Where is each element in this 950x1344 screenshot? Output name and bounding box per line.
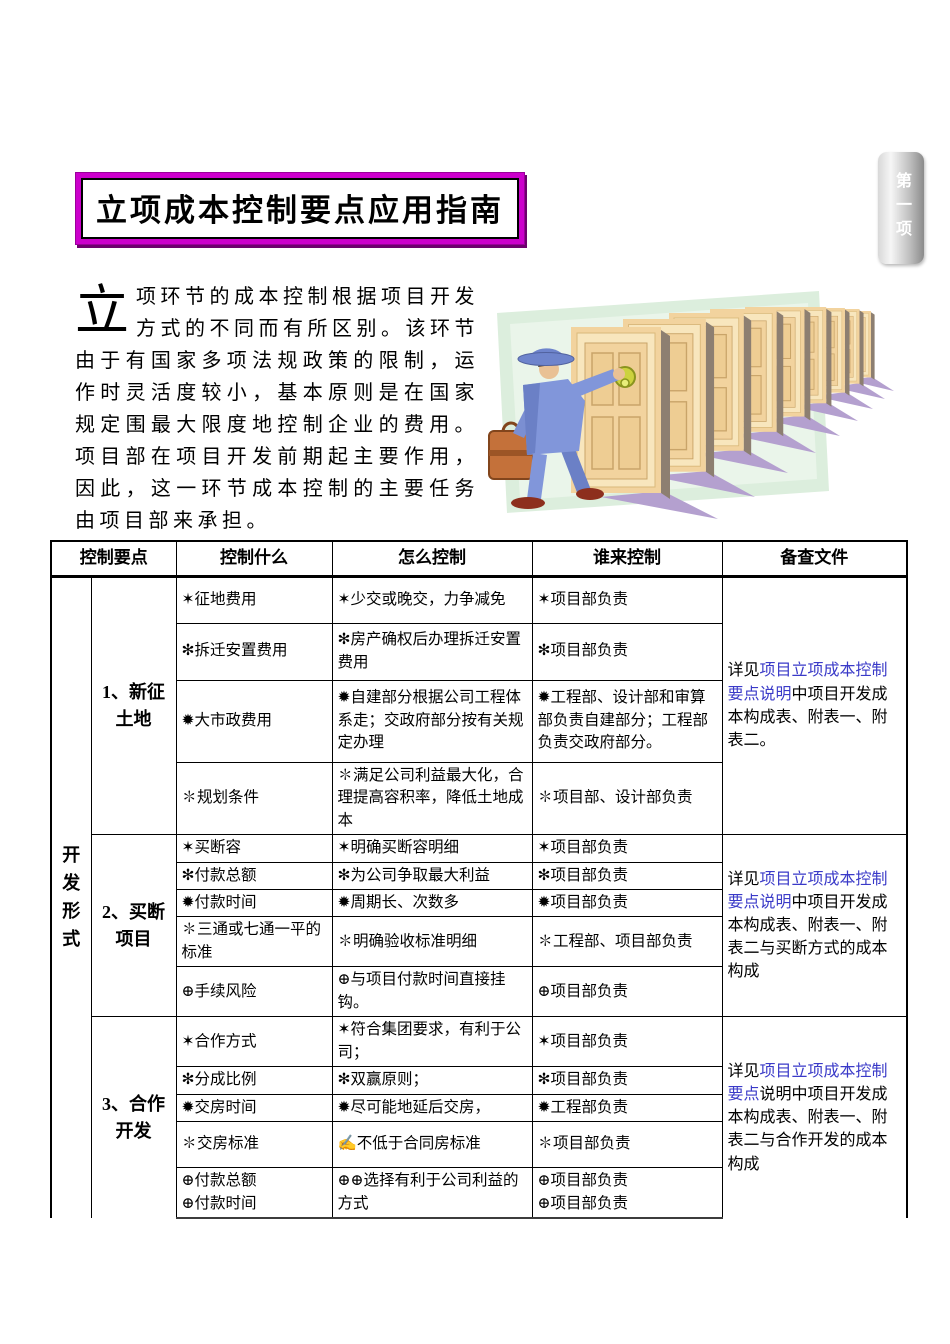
door-icon bbox=[571, 327, 670, 499]
table-row: 开发形式 1、新征土地 ✶征地费用 ✶少交或晚交，力争减免 ✶项目部负责 详见项… bbox=[51, 576, 907, 623]
section-2-label-cell: 2、买断项目 bbox=[91, 835, 176, 1017]
who-cell: ✶项目部负责 bbox=[532, 1017, 722, 1067]
header-control-who: 谁来控制 bbox=[532, 541, 722, 576]
doors-clipart-image bbox=[483, 283, 935, 523]
who-cell: ✻项目部负责 bbox=[532, 862, 722, 889]
how-cell: ⊕⊕选择有利于公司利益的方式 bbox=[332, 1168, 532, 1218]
how-cell: ✽满足公司利益最大化，合理提高容积率，降低土地成本 bbox=[332, 762, 532, 834]
section-3-label-cell: 3、合作开发 bbox=[91, 1017, 176, 1218]
who-cell: ✶项目部负责 bbox=[532, 576, 722, 623]
what-cell: ✻分成比例 bbox=[176, 1067, 332, 1094]
what-cell: ✹付款时间 bbox=[176, 889, 332, 916]
table-header-row: 控制要点 控制什么 怎么控制 谁来控制 备查文件 bbox=[51, 541, 907, 576]
how-cell: ✶明确买断容明细 bbox=[332, 835, 532, 862]
who-cell: ✽项目部、设计部负责 bbox=[532, 762, 722, 834]
page-title: 立项成本控制要点应用指南 bbox=[81, 178, 519, 239]
section-1-label: 1、新征土地 bbox=[101, 679, 166, 733]
title-box: 立项成本控制要点应用指南 bbox=[75, 172, 525, 245]
what-cell: ✽三通或七通一平的标准 bbox=[176, 917, 332, 967]
who-cell: ✻项目部负责 bbox=[532, 623, 722, 680]
header-control-points: 控制要点 bbox=[51, 541, 176, 576]
chapter-side-tab: 第一项 bbox=[878, 152, 924, 264]
reference-text: 详见 bbox=[728, 871, 760, 888]
who-cell: ✻项目部负责 bbox=[532, 1067, 722, 1094]
who-cell: ✹工程部负责 bbox=[532, 1094, 722, 1121]
how-cell: ✻为公司争取最大利益 bbox=[332, 862, 532, 889]
how-cell: ✹尽可能地延后交房， bbox=[332, 1094, 532, 1121]
drop-cap: 立 bbox=[75, 281, 136, 338]
how-cell: ✽明确验收标准明细 bbox=[332, 917, 532, 967]
doors-clipart bbox=[483, 283, 935, 523]
how-cell: ✍不低于合同房标准 bbox=[332, 1122, 532, 1168]
chapter-tab-label: 第一项 bbox=[889, 172, 913, 244]
how-cell: ⊕与项目付款时间直接挂钩。 bbox=[332, 967, 532, 1017]
what-cell: ✶合作方式 bbox=[176, 1017, 332, 1067]
who-cell: ✶项目部负责 bbox=[532, 835, 722, 862]
group-label: 开发形式 bbox=[60, 842, 82, 954]
intro-paragraph: 立项环节的成本控制根据项目开发方式的不同而有所区别。该环节由于有国家多项法规政策… bbox=[75, 281, 479, 537]
what-cell: ✹交房时间 bbox=[176, 1094, 332, 1121]
document-page: 第一项 立项成本控制要点应用指南 立项环节的成本控制根据项目开发方式的不同而有所… bbox=[0, 0, 950, 1344]
section-1-label-cell: 1、新征土地 bbox=[91, 576, 176, 834]
what-cell: ✹大市政费用 bbox=[176, 680, 332, 762]
how-cell: ✶少交或晚交，力争减免 bbox=[332, 576, 532, 623]
reference-cell: 详见项目立项成本控制要点说明中项目开发成本构成表、附表一、附表二。 bbox=[722, 576, 907, 834]
who-cell: ✽项目部负责 bbox=[532, 1122, 722, 1168]
what-cell: ⊕手续风险 bbox=[176, 967, 332, 1017]
what-cell: ✻付款总额 bbox=[176, 862, 332, 889]
header-control-what: 控制什么 bbox=[176, 541, 332, 576]
how-cell: ✶符合集团要求，有利于公司； bbox=[332, 1017, 532, 1067]
who-cell: ⊕项目部负责 ⊕项目部负责 bbox=[532, 1168, 722, 1218]
reference-text: 详见 bbox=[728, 662, 760, 679]
how-cell: ✻房产确权后办理拆迁安置费用 bbox=[332, 623, 532, 680]
section-2-label: 2、买断项目 bbox=[101, 899, 166, 953]
who-cell: ✹项目部负责 bbox=[532, 889, 722, 916]
header-control-how: 怎么控制 bbox=[332, 541, 532, 576]
how-cell: ✹周期长、次数多 bbox=[332, 889, 532, 916]
reference-text: 详见 bbox=[728, 1063, 760, 1080]
cost-control-table: 控制要点 控制什么 怎么控制 谁来控制 备查文件 开发形式 1、新征土地 ✶征地… bbox=[50, 540, 908, 1219]
reference-cell: 详见项目立项成本控制要点说明中项目开发成本构成表、附表一、附表二与合作开发的成本… bbox=[722, 1017, 907, 1218]
table-row: 3、合作开发 ✶合作方式 ✶符合集团要求，有利于公司； ✶项目部负责 详见项目立… bbox=[51, 1017, 907, 1067]
what-cell: ⊕付款总额 ⊕付款时间 bbox=[176, 1168, 332, 1218]
table-row: 2、买断项目 ✶买断容 ✶明确买断容明细 ✶项目部负责 详见项目立项成本控制要点… bbox=[51, 835, 907, 862]
who-cell: ✹工程部、设计部和审算部负责自建部分；工程部负责交政府部分。 bbox=[532, 680, 722, 762]
how-cell: ✻双赢原则； bbox=[332, 1067, 532, 1094]
reference-cell: 详见项目立项成本控制要点说明中项目开发成本构成表、附表一、附表二与买断方式的成本… bbox=[722, 835, 907, 1017]
section-3-label: 3、合作开发 bbox=[101, 1091, 166, 1145]
what-cell: ✶征地费用 bbox=[176, 576, 332, 623]
intro-text: 项环节的成本控制根据项目开发方式的不同而有所区别。该环节由于有国家多项法规政策的… bbox=[75, 286, 479, 532]
group-label-cell: 开发形式 bbox=[51, 576, 91, 1218]
what-cell: ✻拆迁安置费用 bbox=[176, 623, 332, 680]
header-reference-docs: 备查文件 bbox=[722, 541, 907, 576]
what-cell: ✽规划条件 bbox=[176, 762, 332, 834]
what-cell: ✶买断容 bbox=[176, 835, 332, 862]
who-cell: ⊕项目部负责 bbox=[532, 967, 722, 1017]
who-cell: ✽工程部、项目部负责 bbox=[532, 917, 722, 967]
how-cell: ✹自建部分根据公司工程体系走；交政府部分按有关规定办理 bbox=[332, 680, 532, 762]
what-cell: ✽交房标准 bbox=[176, 1122, 332, 1168]
